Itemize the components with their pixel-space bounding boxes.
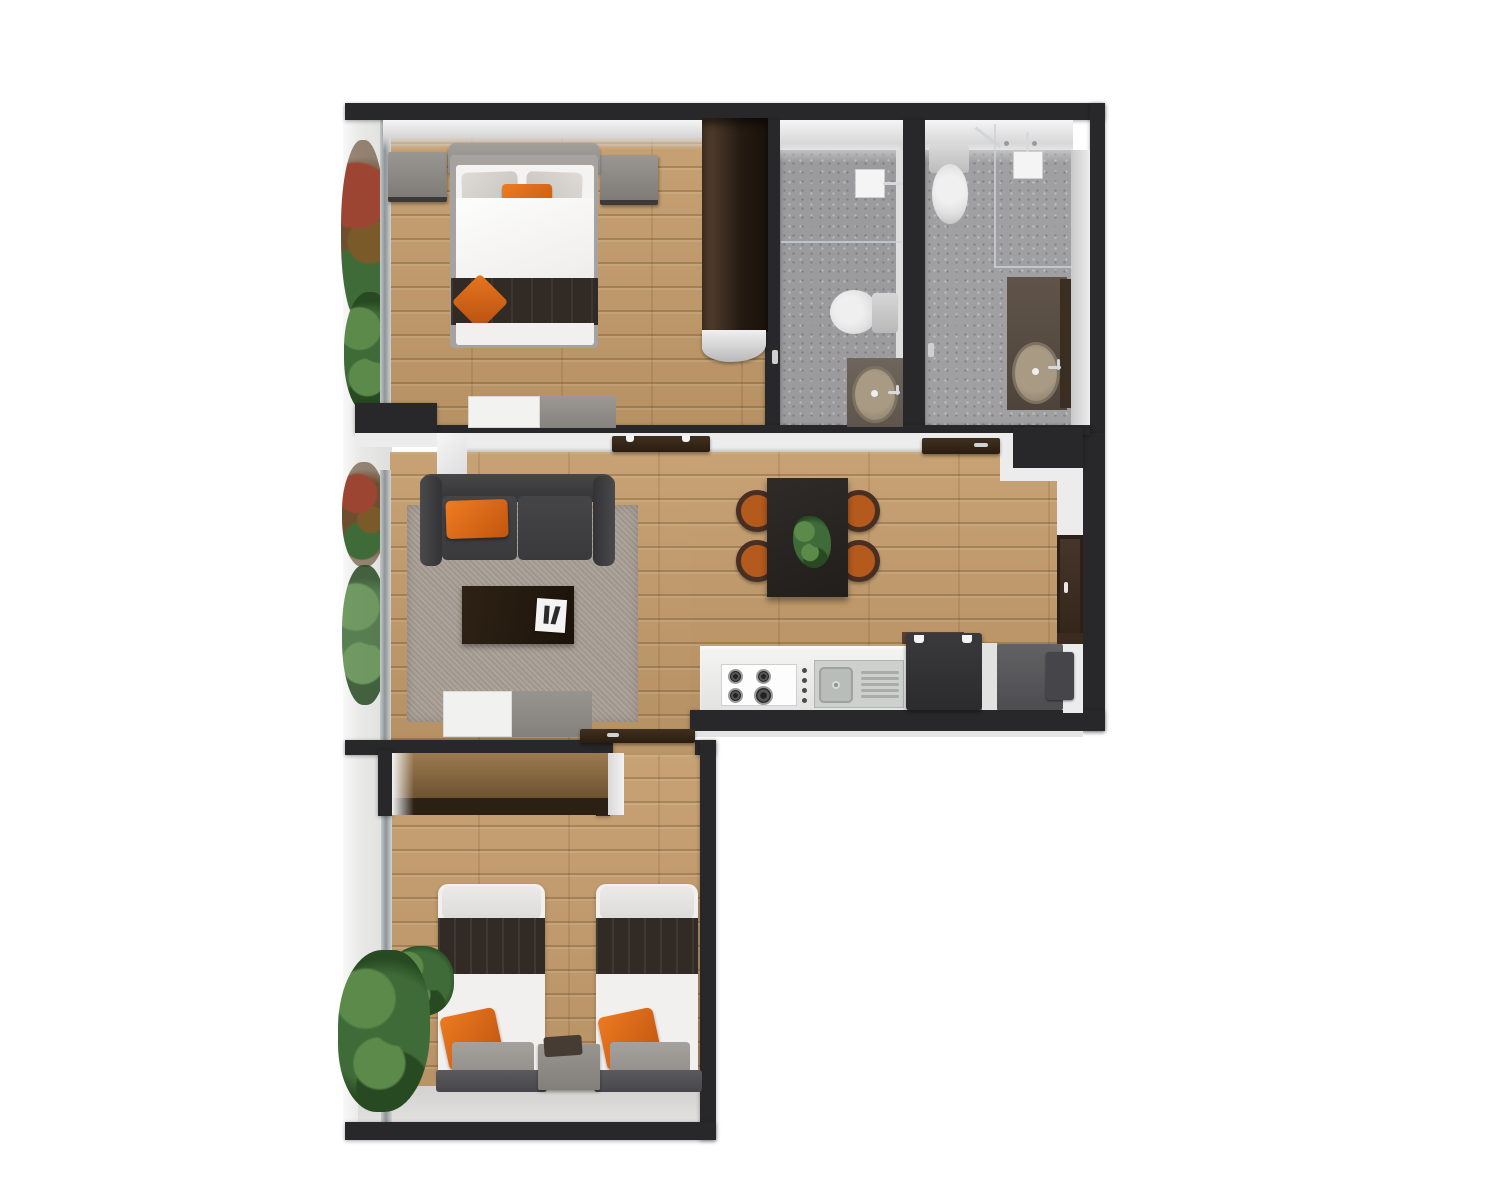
face-left-block-bottom bbox=[355, 433, 437, 447]
wall-outer-bottom bbox=[345, 1122, 716, 1140]
shower-head-1-icon bbox=[855, 169, 885, 198]
door-handle-icon bbox=[974, 443, 988, 447]
sofa-orange-pillow bbox=[445, 499, 508, 539]
floor-plan-render bbox=[0, 0, 1500, 1200]
sofa-arm-right bbox=[593, 476, 615, 566]
bed-left-runner bbox=[438, 918, 545, 974]
twin-bedroom-door-leaf bbox=[580, 729, 695, 743]
vanity-2-tap-stem bbox=[1057, 359, 1060, 370]
entry-door-handle-icon bbox=[1064, 582, 1068, 593]
single-bed-left bbox=[438, 884, 545, 1090]
drainer-ridge-4 bbox=[861, 689, 899, 692]
twin-niche-back bbox=[392, 753, 608, 800]
face-jog-horizontal bbox=[1013, 468, 1083, 481]
tv-stand-white bbox=[443, 691, 512, 737]
burner-icon-4 bbox=[754, 686, 773, 705]
entry-side-wood-ledge bbox=[1057, 633, 1083, 644]
door-hinge-icon bbox=[626, 435, 634, 442]
bathroom-1-door-mark bbox=[772, 350, 778, 364]
shower-arm-2 bbox=[1026, 132, 1029, 152]
open-wardrobe bbox=[702, 118, 768, 332]
wall-outer-right-upper bbox=[1090, 103, 1105, 433]
master-bedroom-door-leaf bbox=[612, 436, 710, 452]
wall-twin-bedroom-right bbox=[700, 740, 716, 1140]
wall-jog-fill bbox=[1013, 427, 1083, 468]
toilet-2 bbox=[932, 164, 968, 224]
magazine-glyph bbox=[543, 606, 549, 624]
shower-glass-2-horizontal bbox=[994, 266, 1074, 268]
nightstand-right bbox=[600, 155, 658, 205]
shower-2-control-dot bbox=[1004, 141, 1009, 146]
drainer-ridge-1 bbox=[861, 671, 899, 674]
wall-outer-right-lower bbox=[1083, 433, 1105, 731]
wall-kitchen-bottom bbox=[690, 710, 1105, 731]
shower-glass-1 bbox=[781, 241, 902, 243]
door-hinge-icon-2 bbox=[682, 435, 690, 442]
burner-icon-3 bbox=[728, 688, 743, 703]
sofa-arm-left bbox=[420, 476, 442, 566]
face-jog-vertical bbox=[1000, 433, 1013, 481]
bed-left-header-fold bbox=[442, 886, 541, 920]
vanity-1-tap-stem bbox=[896, 385, 899, 395]
refrigerator-handle bbox=[1046, 652, 1074, 700]
living-room-window-frame bbox=[380, 470, 391, 742]
shower-2-control-dot-2 bbox=[1032, 141, 1037, 146]
niche-post-left bbox=[378, 750, 392, 816]
shower-arm-1 bbox=[883, 182, 903, 185]
hob-knob-1 bbox=[802, 668, 807, 673]
single-bed-right bbox=[596, 884, 702, 1090]
bed-right-header-fold bbox=[600, 886, 694, 920]
hob-knob-3 bbox=[802, 688, 807, 693]
toilet-1-tank bbox=[872, 293, 898, 333]
burner-icon-1 bbox=[728, 669, 743, 684]
dresser-gray-section bbox=[540, 396, 616, 428]
twin-nightstand-item bbox=[543, 1035, 582, 1058]
shower-head-2-icon bbox=[1013, 151, 1043, 179]
nightstand-left bbox=[388, 152, 447, 202]
twin-niche-base bbox=[392, 798, 608, 815]
wall-mid-left-block bbox=[355, 403, 437, 433]
counter-divider bbox=[982, 643, 997, 710]
drainer-ridge-3 bbox=[861, 683, 899, 686]
dishwasher bbox=[906, 633, 982, 710]
wall-bathroom-divider bbox=[903, 120, 925, 433]
bed-right-base-bar bbox=[594, 1070, 702, 1092]
sink-drain-icon bbox=[832, 681, 840, 689]
twin-niche-face-left bbox=[392, 753, 414, 815]
bed-right-runner bbox=[596, 918, 698, 974]
toilet-1 bbox=[830, 290, 878, 334]
magazine-glyph-2 bbox=[550, 606, 560, 624]
door-handle-icon-2 bbox=[607, 733, 619, 737]
bed-foot-sheet bbox=[456, 323, 594, 345]
double-bed bbox=[448, 143, 600, 348]
burner-icon-2 bbox=[756, 669, 771, 684]
hob-knob-2 bbox=[802, 678, 807, 683]
refrigerator bbox=[997, 644, 1063, 710]
entry-door bbox=[1060, 539, 1080, 635]
face-bathroom1-top bbox=[780, 120, 903, 162]
hob-knob-4 bbox=[802, 698, 807, 703]
kitchen-sink-unit bbox=[814, 660, 904, 708]
sofa-seat-right bbox=[518, 496, 592, 560]
twin-niche-face-right bbox=[608, 753, 624, 815]
sofa bbox=[420, 474, 615, 566]
appliance-hinge-icon-1 bbox=[914, 635, 924, 643]
magazine bbox=[535, 598, 567, 633]
bathroom-2-door-mark bbox=[928, 343, 934, 357]
vanity-2-side-panel bbox=[1060, 279, 1071, 408]
bathroom-hall-door-leaf bbox=[922, 438, 1000, 454]
twin-bedroom-monstera-icon bbox=[338, 950, 430, 1112]
appliance-hinge-icon-2 bbox=[962, 635, 972, 643]
gas-hob bbox=[721, 664, 797, 706]
drainer-ridge-2 bbox=[861, 677, 899, 680]
face-kitchen-bottom-sliver bbox=[690, 731, 1083, 737]
dresser-white-section bbox=[468, 396, 540, 428]
vanity-2-drain bbox=[1032, 368, 1039, 375]
bed-left-base-bar bbox=[436, 1070, 547, 1092]
face-bathroom2-right bbox=[1071, 150, 1090, 425]
face-left-corner bbox=[437, 433, 467, 475]
drainer-ridge-5 bbox=[861, 695, 899, 698]
vanity-1-drain bbox=[871, 390, 878, 397]
